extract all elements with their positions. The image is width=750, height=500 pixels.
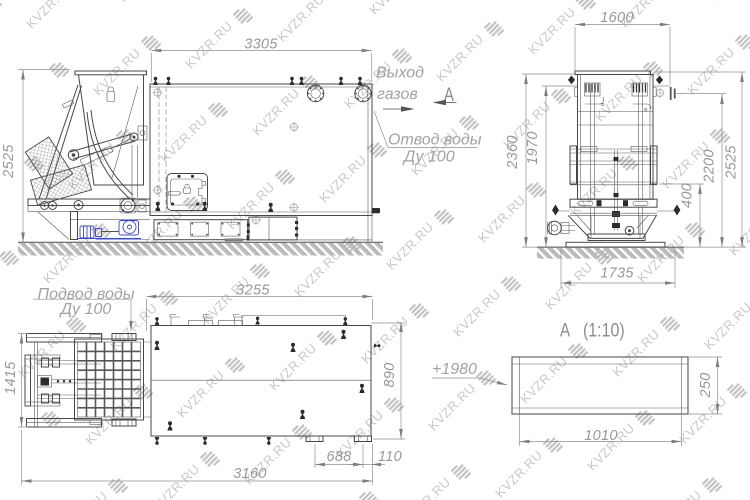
svg-text:KVZR.RU: KVZR.RU (676, 393, 729, 446)
svg-text:KVZR.RU: KVZR.RU (316, 152, 369, 205)
svg-text:KVZR.RU: KVZR.RU (684, 44, 737, 97)
svg-text:KVZR.RU: KVZR.RU (592, 71, 645, 124)
svg-text:KVZR.RU: KVZR.RU (475, 192, 528, 245)
svg-text:KVZR.RU: KVZR.RU (157, 112, 210, 165)
svg-text:KVZR.RU: KVZR.RU (433, 31, 486, 84)
svg-text:KVZR.RU: KVZR.RU (425, 380, 478, 433)
svg-text:2360: 2360 (505, 135, 521, 169)
svg-text:2525: 2525 (724, 145, 740, 180)
svg-text:KVZR.RU: KVZR.RU (274, 0, 327, 45)
svg-text:KVZR.RU: KVZR.RU (15, 327, 68, 380)
svg-text:KVZR.RU: KVZR.RU (107, 300, 160, 353)
svg-text:KVZR.RU: KVZR.RU (517, 353, 570, 406)
svg-text:3160: 3160 (233, 466, 266, 482)
svg-text:KVZR.RU: KVZR.RU (567, 165, 620, 218)
svg-text:250: 250 (698, 372, 714, 398)
svg-text:KVZR.RU: KVZR.RU (90, 45, 143, 98)
svg-text:KVZR.RU: KVZR.RU (701, 299, 750, 352)
svg-text:KVZR.RU: KVZR.RU (492, 447, 545, 500)
svg-text:3305: 3305 (244, 36, 278, 52)
svg-text:1010: 1010 (584, 428, 617, 444)
svg-text:Выход: Выход (376, 65, 424, 82)
svg-text:KVZR.RU: KVZR.RU (182, 18, 235, 71)
svg-text:KVZR.RU: KVZR.RU (726, 205, 750, 258)
svg-text:Отвод воды: Отвод воды (388, 132, 482, 149)
svg-text:Ду 100: Ду 100 (402, 149, 455, 166)
svg-text:KVZR.RU: KVZR.RU (115, 0, 168, 5)
svg-text:2525: 2525 (1, 144, 17, 179)
svg-text:KVZR.RU: KVZR.RU (400, 474, 453, 500)
svg-text:KVZR.RU: KVZR.RU (199, 273, 252, 326)
svg-text:(1:10): (1:10) (583, 319, 625, 341)
svg-text:1415: 1415 (3, 361, 19, 395)
svg-text:KVZR.RU: KVZR.RU (709, 0, 750, 4)
svg-text:3255: 3255 (236, 283, 270, 299)
svg-text:KVZR.RU: KVZR.RU (358, 313, 411, 366)
svg-text:KVZR.RU: KVZR.RU (542, 259, 595, 312)
svg-text:1970: 1970 (525, 131, 541, 164)
svg-text:KVZR.RU: KVZR.RU (450, 286, 503, 339)
svg-text:KVZR.RU: KVZR.RU (525, 4, 578, 57)
svg-text:KVZR.RU: KVZR.RU (57, 488, 110, 500)
svg-text:1600: 1600 (600, 10, 633, 26)
svg-text:2200: 2200 (702, 149, 718, 183)
svg-text:KVZR.RU: KVZR.RU (366, 0, 419, 18)
svg-text:KVZR.RU: KVZR.RU (174, 367, 227, 420)
svg-text:газов: газов (377, 86, 418, 103)
svg-text:1735: 1735 (600, 266, 634, 282)
svg-text:890: 890 (382, 362, 398, 387)
svg-text:KVZR.RU: KVZR.RU (149, 461, 202, 500)
svg-text:KVZR.RU: KVZR.RU (383, 219, 436, 272)
svg-text:KVZR.RU: KVZR.RU (40, 233, 93, 286)
svg-text:400: 400 (680, 183, 696, 208)
svg-text:Ду 100: Ду 100 (59, 301, 112, 318)
svg-text:+1980: +1980 (432, 361, 477, 378)
svg-text:KVZR.RU: KVZR.RU (651, 487, 704, 500)
svg-text:А: А (560, 319, 571, 341)
svg-text:688: 688 (326, 449, 351, 465)
svg-text:KVZR.RU: KVZR.RU (743, 460, 750, 500)
svg-text:110: 110 (378, 449, 402, 465)
svg-text:KVZR.RU: KVZR.RU (23, 0, 76, 32)
